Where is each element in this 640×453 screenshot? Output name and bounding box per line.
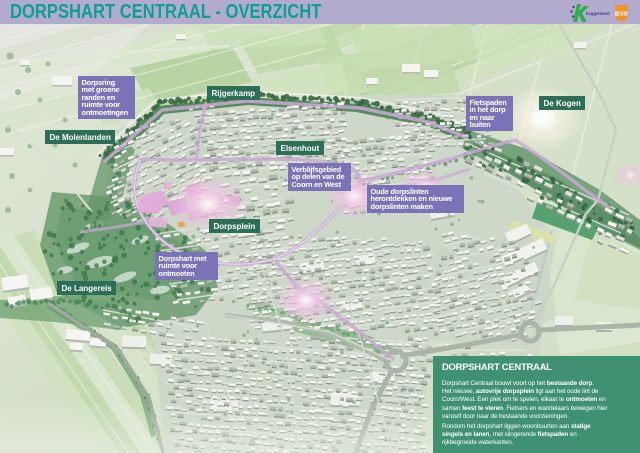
svg-text:BVR: BVR	[615, 12, 628, 18]
svg-text:koggenland: koggenland	[586, 11, 610, 16]
